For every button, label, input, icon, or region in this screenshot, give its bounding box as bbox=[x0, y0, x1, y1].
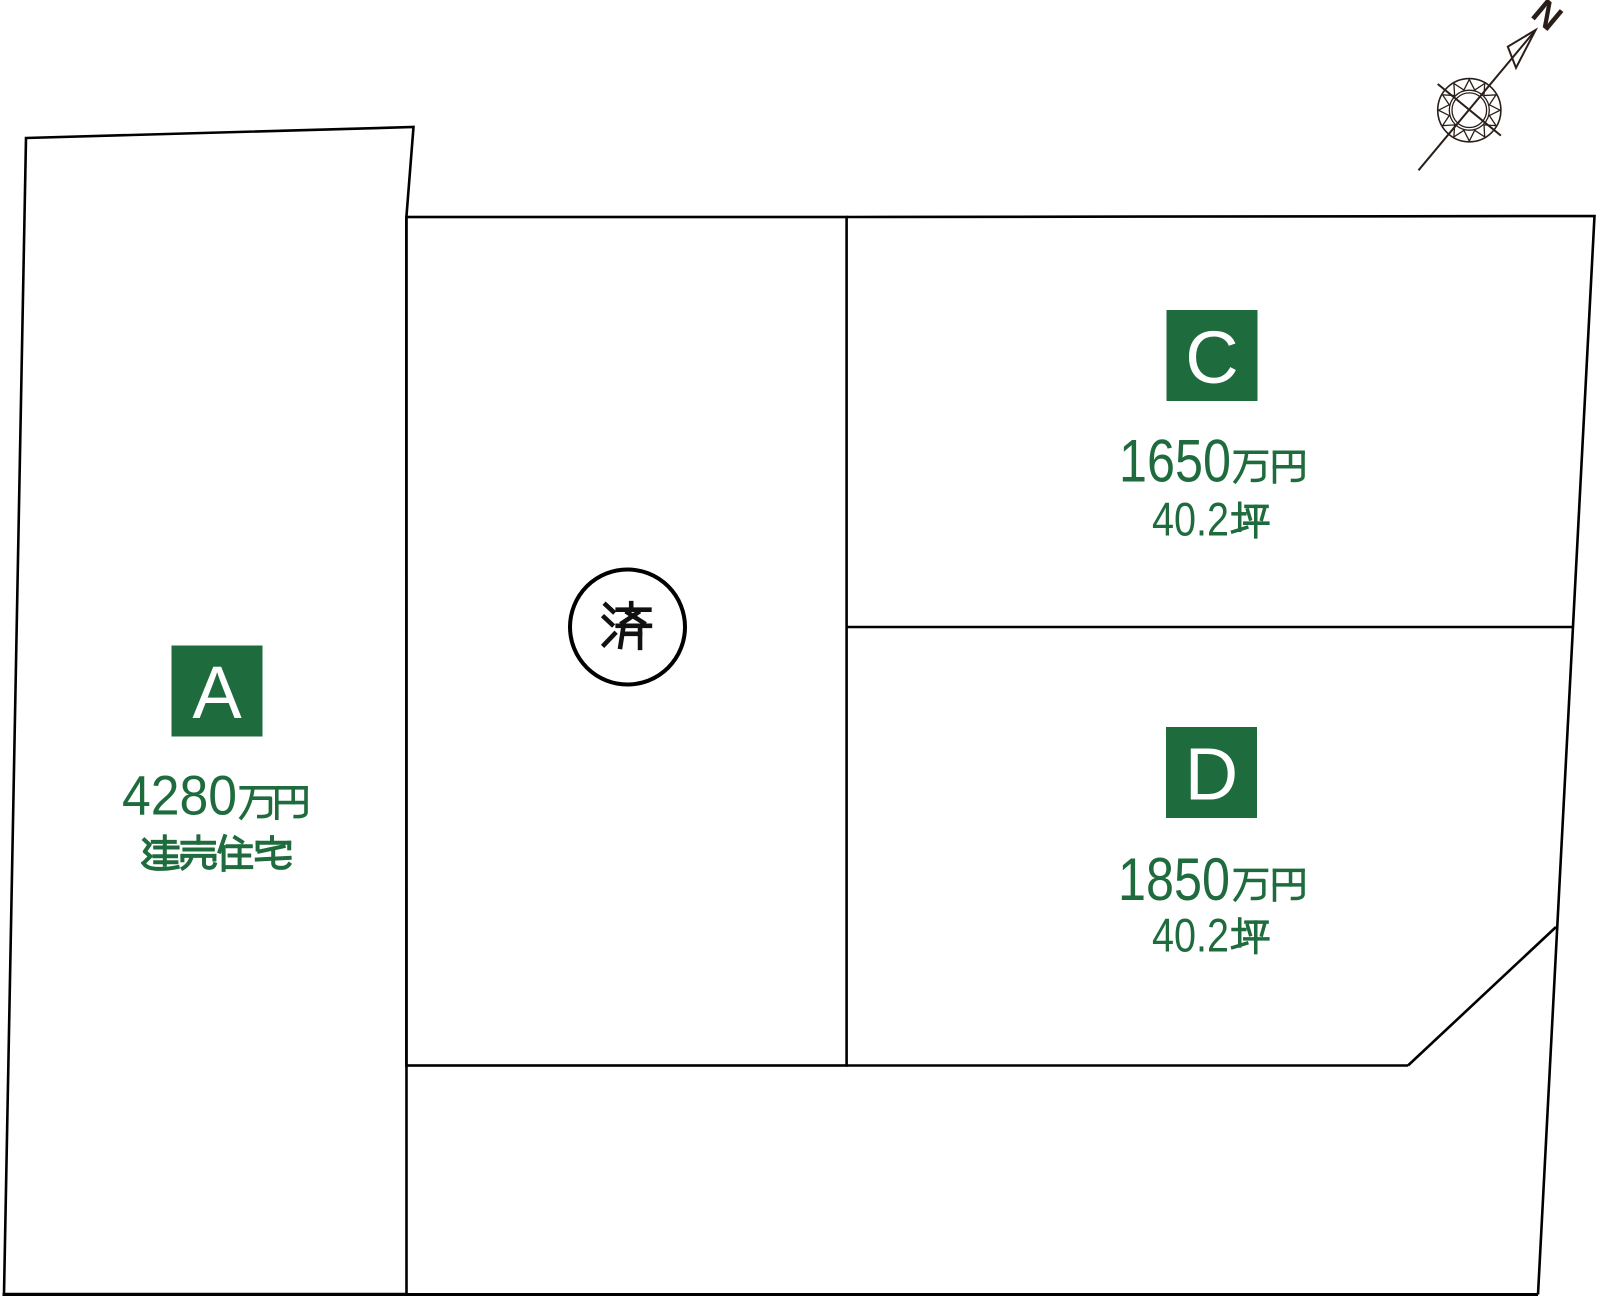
svg-text:40.2: 40.2 bbox=[1152, 909, 1229, 962]
svg-text:4280: 4280 bbox=[122, 764, 237, 827]
svg-text:1850: 1850 bbox=[1118, 846, 1230, 913]
svg-text:40.2: 40.2 bbox=[1152, 493, 1229, 546]
svg-text:1650: 1650 bbox=[1119, 428, 1231, 495]
svg-text:C: C bbox=[1185, 316, 1238, 399]
svg-text:A: A bbox=[192, 651, 242, 734]
svg-text:D: D bbox=[1185, 733, 1238, 816]
